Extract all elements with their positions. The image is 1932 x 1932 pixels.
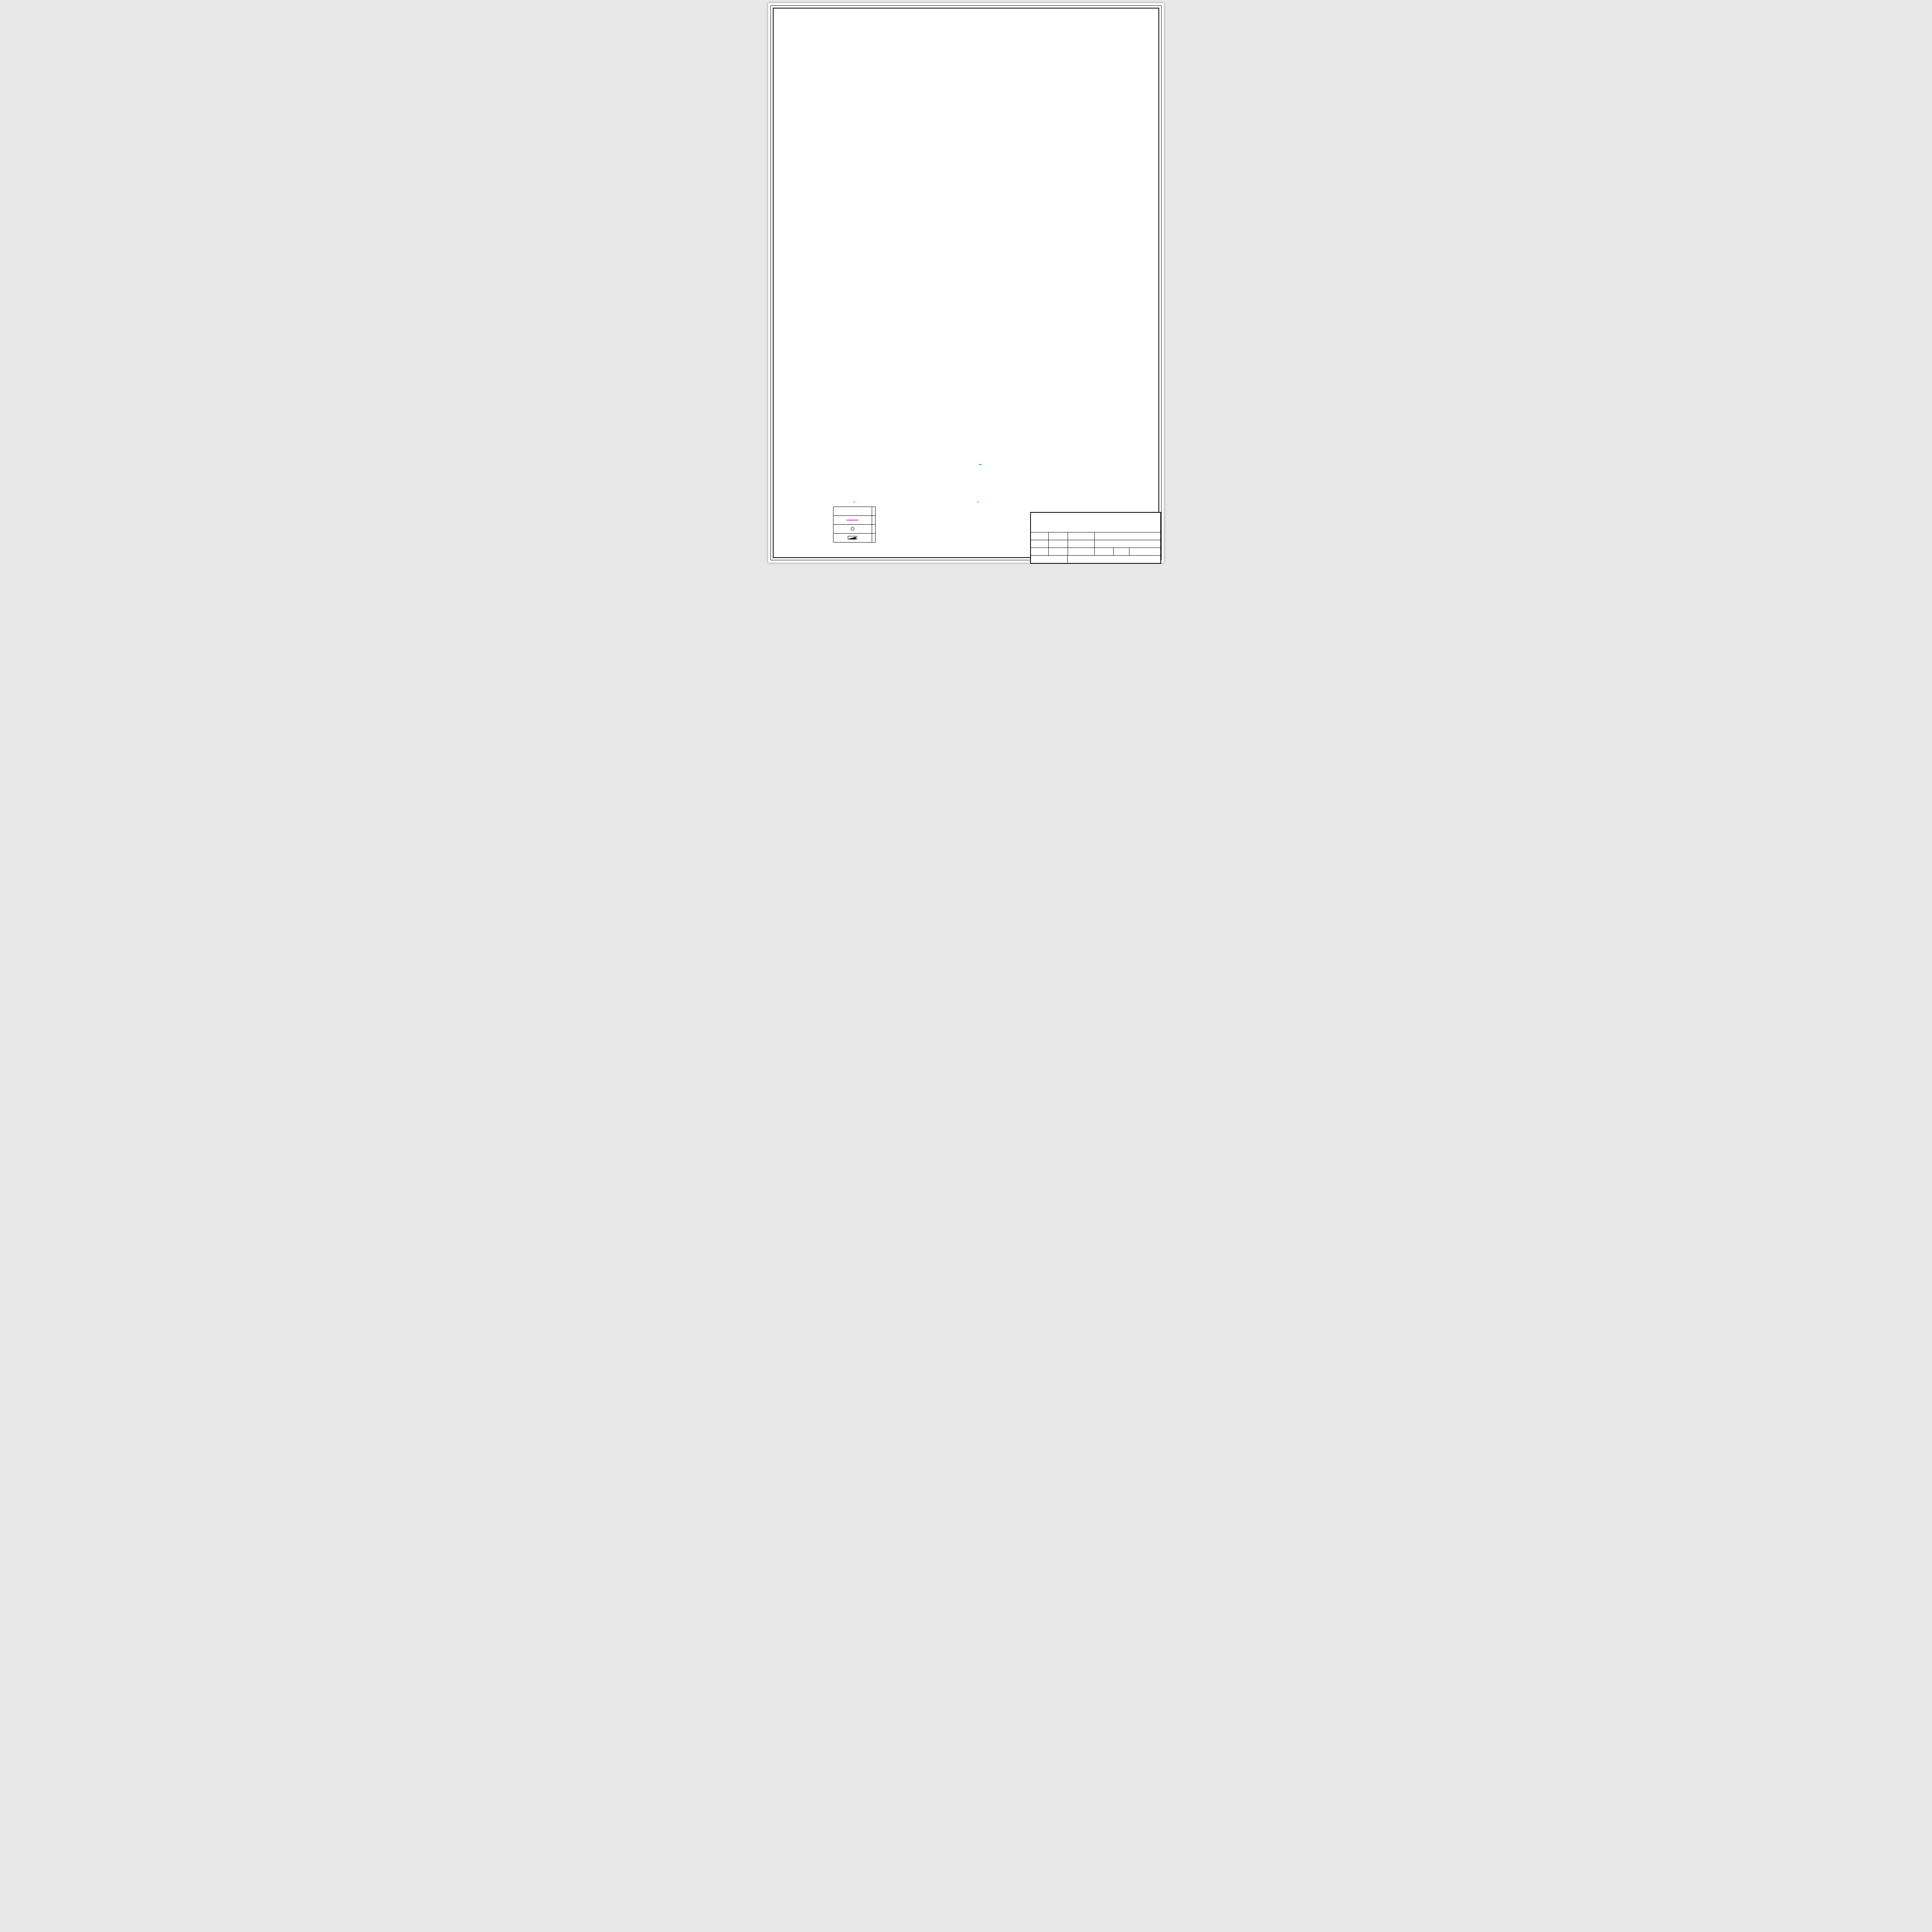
class-value [1048,532,1068,540]
sprinkler-head-icon [833,525,872,534]
class-label [1031,532,1048,540]
student-id-label [1031,548,1048,555]
drawing-title [923,459,1039,466]
legend-header-symbol [833,507,872,516]
subject-label [1068,532,1094,540]
fire-hydrant-icon [833,534,872,543]
advisor-label [1031,556,1067,563]
legend-header-name [872,507,875,516]
name-value [1048,540,1068,548]
dwgname-value [1094,540,1160,548]
legend-title [833,498,876,503]
notes-title [922,498,1034,503]
student-id-value [1048,548,1068,555]
dwgname-label [1068,540,1094,548]
subject-value [1094,532,1160,540]
dwgno-value [1094,548,1113,555]
legend-row-name [872,534,875,543]
legend-table [833,507,876,543]
title-block [1030,512,1161,564]
dwgno-label [1068,548,1094,555]
advisor-value [1067,556,1160,563]
sprinkler-pipe-icon [833,516,872,525]
floor-plan-canvas [768,3,1164,563]
date-label [1113,548,1129,555]
school-title [1031,513,1160,532]
drawing-title-text [979,463,982,465]
legend-block [833,498,876,543]
notes-block [922,498,1034,507]
name-label [1031,540,1048,548]
legend-row-name [872,525,875,534]
drawing-sheet [768,3,1164,563]
legend-row-name [872,516,875,525]
date-value [1129,548,1160,555]
